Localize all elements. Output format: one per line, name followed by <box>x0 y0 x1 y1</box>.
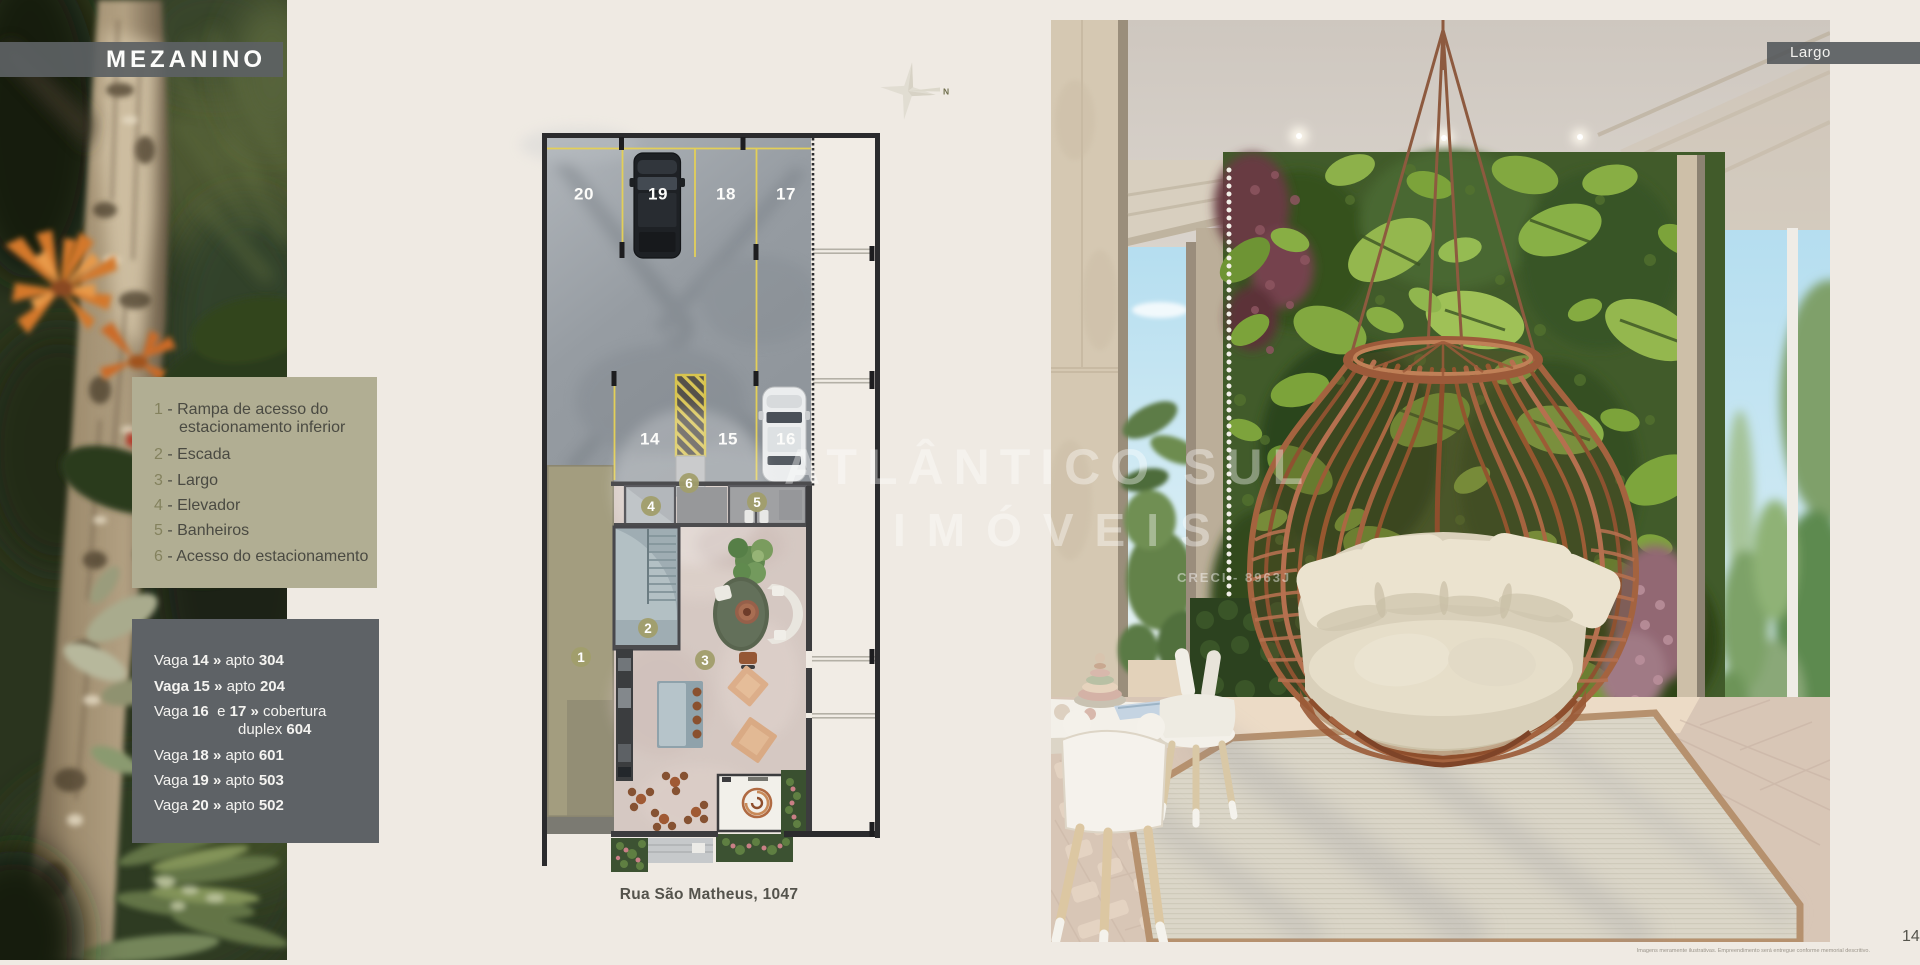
svg-text:20: 20 <box>574 185 594 204</box>
svg-text:18: 18 <box>716 185 736 204</box>
svg-text:14: 14 <box>640 430 660 449</box>
svg-text:19: 19 <box>648 185 668 204</box>
svg-text:3: 3 <box>701 653 709 668</box>
svg-text:1: 1 <box>577 650 585 665</box>
svg-text:15: 15 <box>718 430 738 449</box>
svg-text:5: 5 <box>753 495 761 510</box>
svg-text:4: 4 <box>647 499 655 514</box>
svg-text:16: 16 <box>776 430 796 449</box>
svg-text:2: 2 <box>644 621 652 636</box>
svg-text:6: 6 <box>685 476 693 491</box>
svg-text:17: 17 <box>776 185 796 204</box>
